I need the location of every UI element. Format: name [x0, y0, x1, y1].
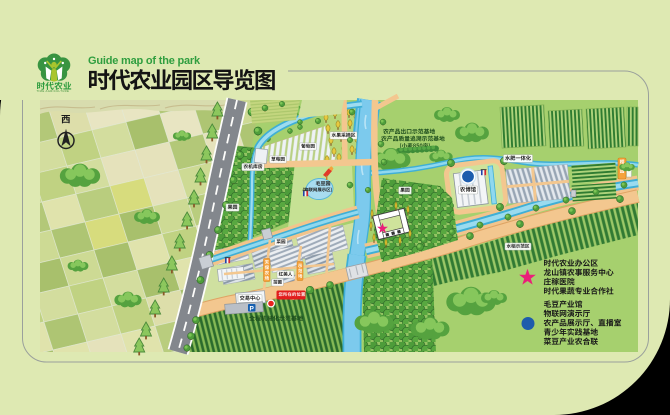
- svg-text:Guide map of the park: Guide map of the park: [88, 55, 201, 67]
- svg-text:TIME AGRICULTURE: TIME AGRICULTURE: [37, 89, 70, 93]
- svg-text:P: P: [250, 305, 255, 312]
